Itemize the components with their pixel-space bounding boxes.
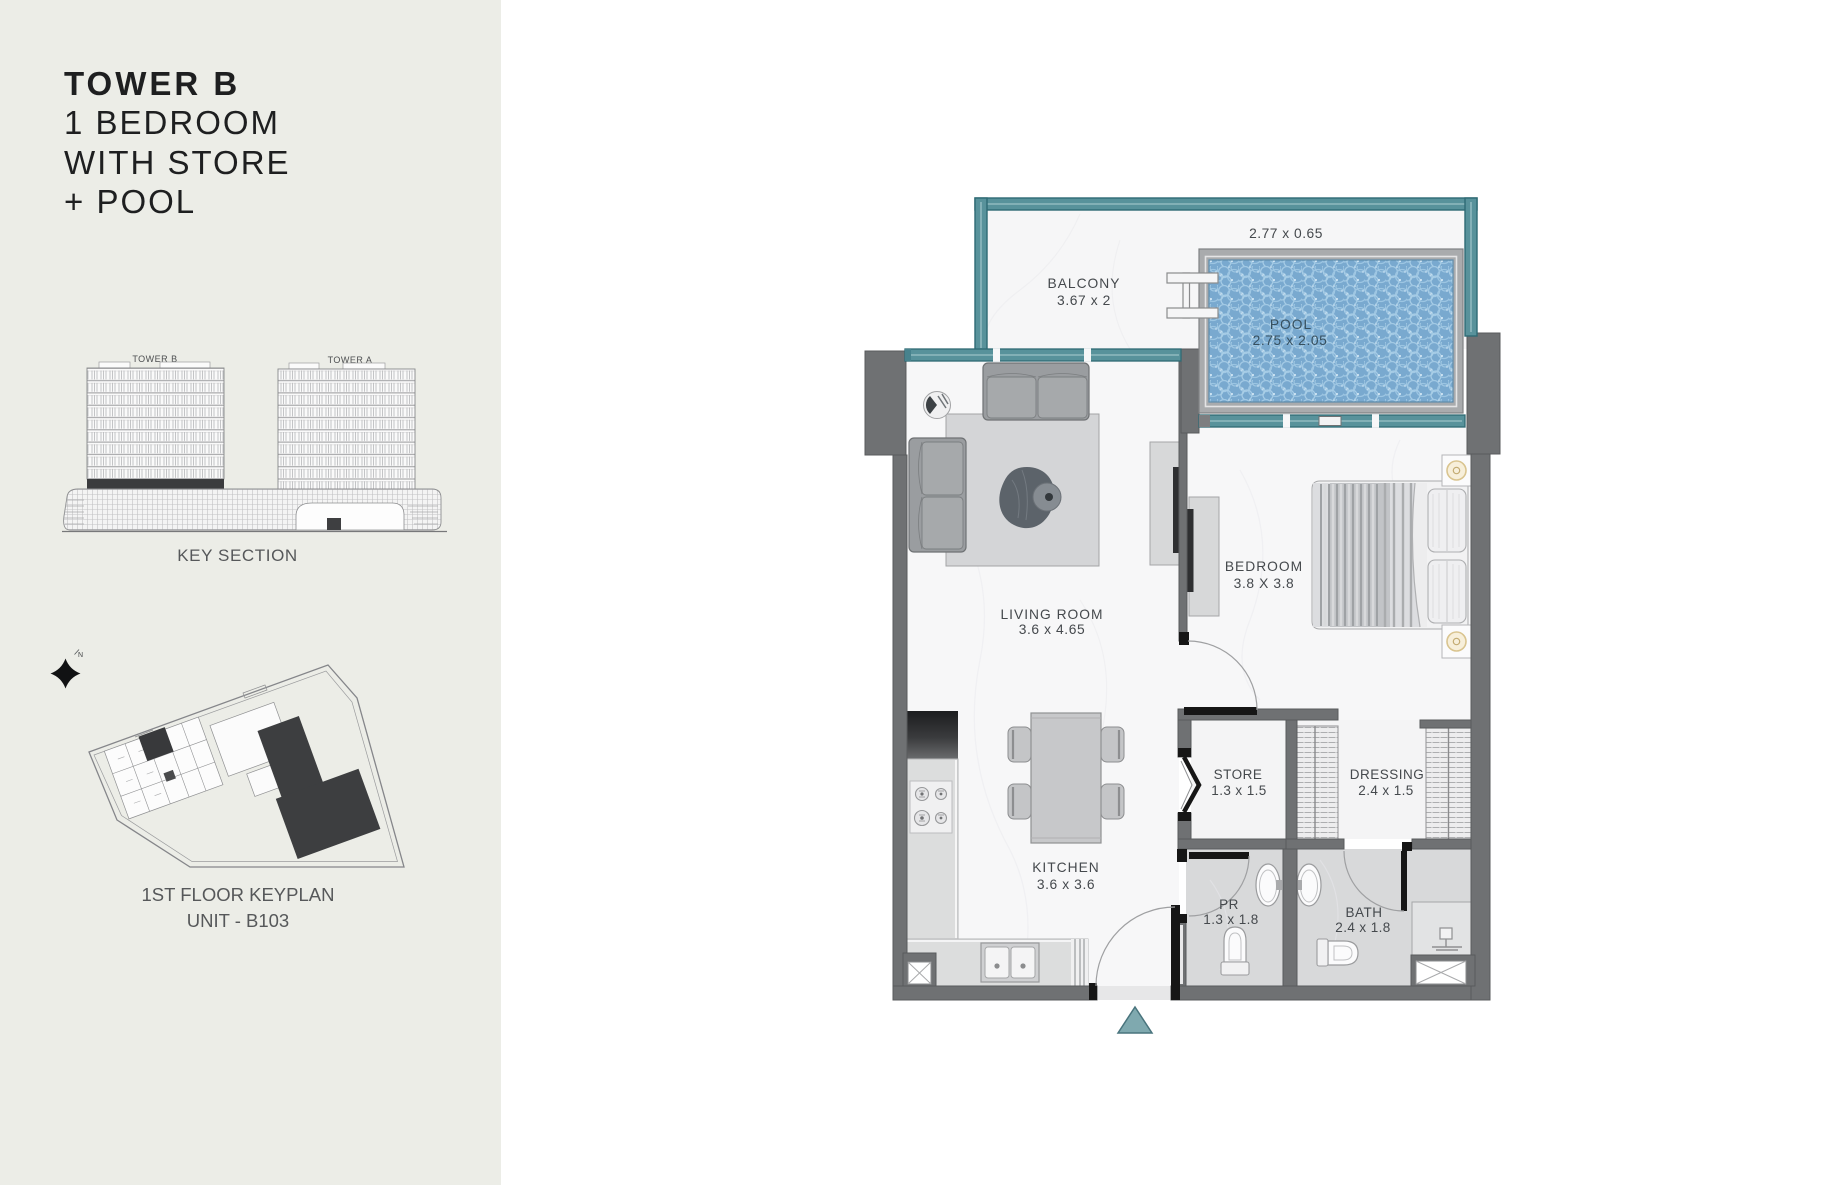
svg-text:3.6 x 4.65: 3.6 x 4.65	[1019, 622, 1086, 637]
svg-text:1.3 x 1.8: 1.3 x 1.8	[1203, 912, 1258, 927]
svg-text:BALCONY: BALCONY	[1048, 276, 1121, 291]
svg-text:2.77 x 0.65: 2.77 x 0.65	[1249, 226, 1323, 241]
svg-text:STORE: STORE	[1214, 767, 1263, 782]
svg-text:BATH: BATH	[1345, 905, 1382, 920]
svg-text:2.4 x 1.5: 2.4 x 1.5	[1358, 783, 1413, 798]
svg-text:2.75 x 2.05: 2.75 x 2.05	[1253, 333, 1328, 348]
svg-text:BEDROOM: BEDROOM	[1225, 559, 1303, 574]
svg-text:3.67 x 2: 3.67 x 2	[1057, 293, 1111, 308]
svg-text:1.3 x 1.5: 1.3 x 1.5	[1211, 783, 1266, 798]
svg-text:2.4 x 1.8: 2.4 x 1.8	[1335, 920, 1390, 935]
svg-text:KITCHEN: KITCHEN	[1032, 860, 1100, 875]
svg-text:3.8 X 3.8: 3.8 X 3.8	[1234, 576, 1295, 591]
svg-text:3.6 x 3.6: 3.6 x 3.6	[1037, 877, 1095, 892]
svg-text:PR: PR	[1219, 897, 1239, 912]
svg-text:DRESSING: DRESSING	[1350, 767, 1425, 782]
svg-text:POOL: POOL	[1270, 317, 1312, 332]
svg-text:LIVING ROOM: LIVING ROOM	[1001, 607, 1104, 622]
